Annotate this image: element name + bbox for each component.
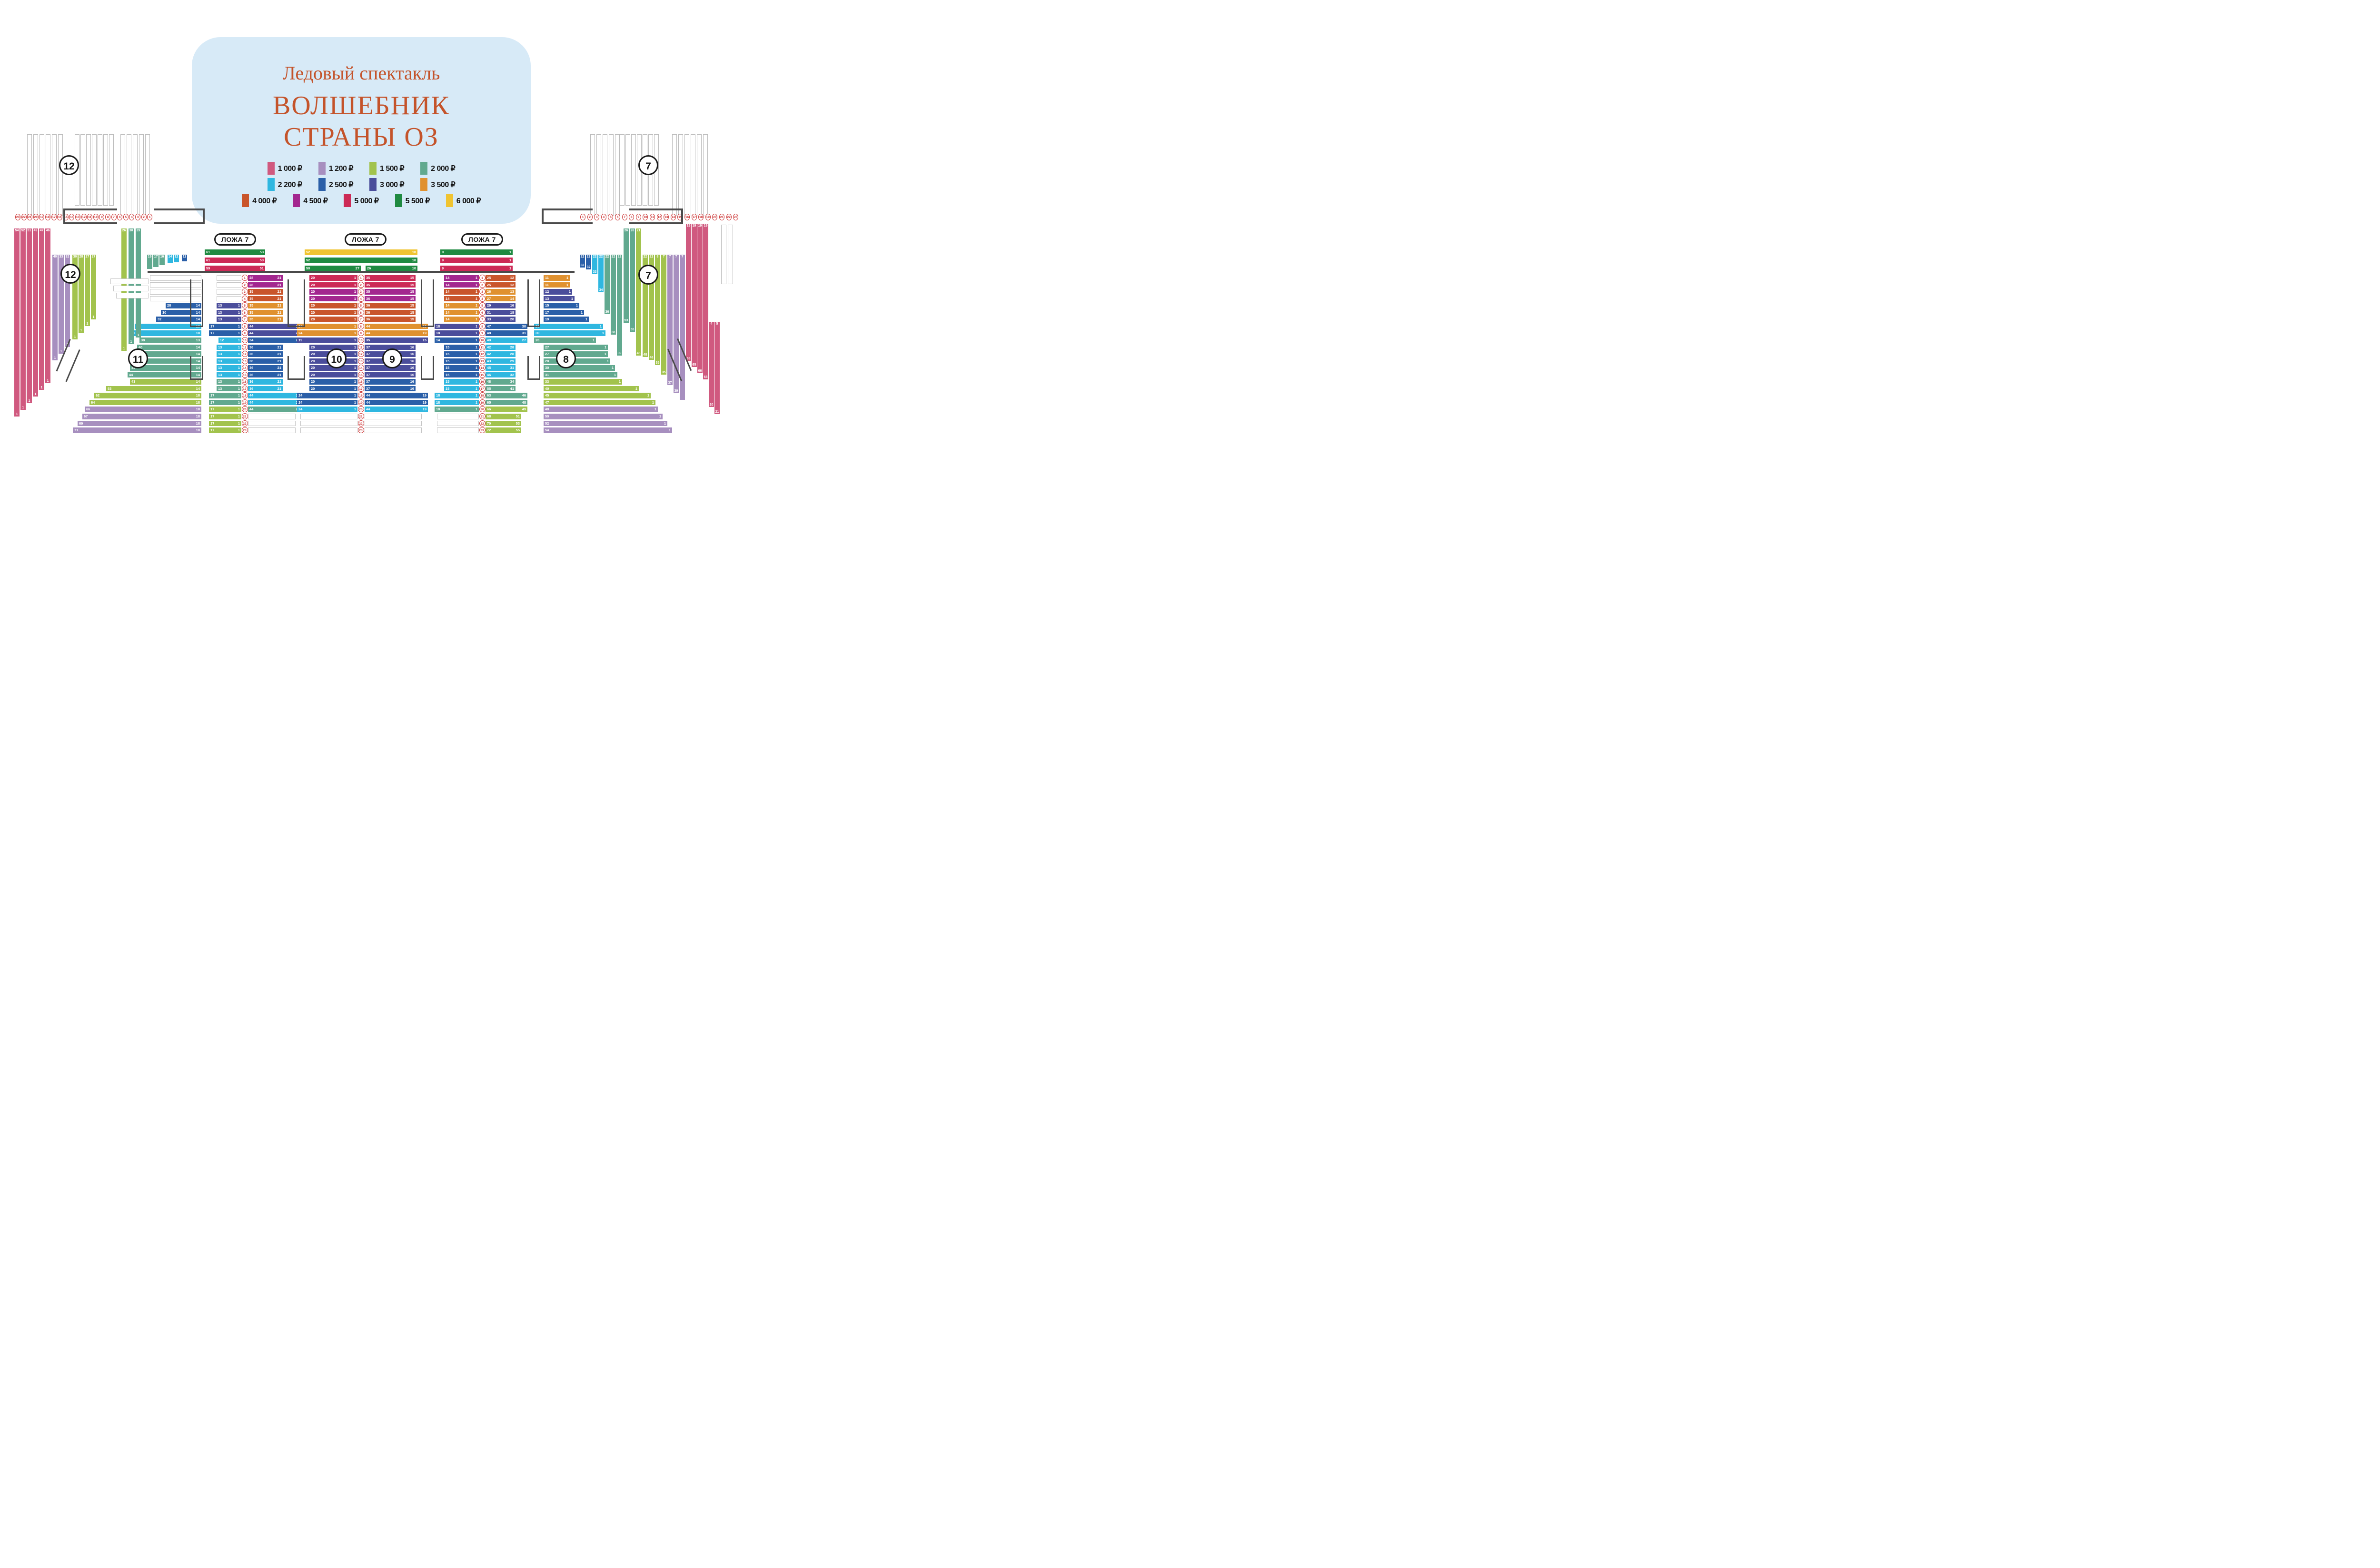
center-left-row-bar[interactable]: 3521: [248, 310, 283, 316]
row-number-circle: 17: [242, 386, 248, 392]
section-circle[interactable]: 12: [59, 155, 79, 175]
central-right-row-bar[interactable]: 4419: [365, 400, 428, 406]
center-right-outer-row-bar[interactable]: 6649: [486, 407, 527, 412]
side-seat-column[interactable]: 471: [39, 228, 44, 390]
section-circle[interactable]: 8: [556, 348, 576, 368]
central-right-row-bar[interactable]: 4419: [365, 407, 428, 412]
center-right-inner-row-bar[interactable]: 181: [435, 400, 479, 406]
seat-number-label: 11: [545, 275, 549, 281]
seat-number-label: 14: [446, 317, 449, 322]
side-seat-column[interactable]: 1963: [686, 224, 691, 361]
seat-number-label: 30: [545, 365, 549, 371]
center-right-outer-row-bar[interactable]: 2714: [486, 296, 516, 302]
price-legend: 1 000 ₽1 200 ₽1 500 ₽2 000 ₽2 200 ₽2 500…: [192, 162, 531, 210]
wing-left-row-bar[interactable]: 6418: [89, 400, 201, 406]
central-right-row-bar[interactable]: 3615: [365, 296, 416, 302]
loge-row-bar[interactable]: 91: [440, 266, 513, 271]
seat-number-label: 40: [545, 386, 549, 392]
side-seat-column[interactable]: 511: [27, 228, 32, 403]
center-right-inner-row-bar[interactable]: 141: [444, 282, 479, 288]
center-right-outer-row-bar[interactable]: 4228: [486, 351, 516, 357]
seat-number-label: 16: [410, 372, 414, 378]
wing-right-row-bar[interactable]: 121: [544, 289, 572, 295]
seat-number-label: 1: [476, 379, 477, 385]
center-left-row-bar[interactable]: 3621: [248, 345, 283, 350]
side-seat-column[interactable]: 735: [661, 255, 666, 375]
central-right-row-bar[interactable]: 3615: [365, 317, 416, 322]
center-right-outer-row-bar[interactable]: 2512: [486, 282, 516, 288]
central-left-row-bar[interactable]: 201: [309, 282, 357, 288]
seat-number-label: 14: [168, 255, 173, 258]
central-left-row-bar[interactable]: 201: [309, 386, 357, 392]
seat-number-label: 1: [238, 386, 240, 392]
side-seat-column[interactable]: 2236: [605, 255, 610, 314]
loge-row-bar[interactable]: 5951: [205, 266, 265, 271]
wing-right-row-bar[interactable]: 331: [544, 379, 622, 385]
row-number-circle: 2: [358, 282, 364, 288]
loge-row-bar[interactable]: 91: [440, 258, 513, 263]
seat-number-label: 54: [14, 229, 20, 232]
center-right-outer-row-bar[interactable]: 2512: [486, 275, 516, 281]
wing-right-row-bar[interactable]: 191: [544, 317, 589, 322]
seat-number-label: 13: [218, 365, 222, 371]
side-seat-column[interactable]: 2232: [586, 255, 591, 269]
seat-number-label: 39: [617, 352, 622, 355]
row-number-circle: 1: [479, 275, 486, 281]
wing-left-row-bar[interactable]: 4014: [137, 345, 201, 350]
side-seat-column[interactable]: 2146: [636, 228, 641, 356]
aisle-left-row-bar[interactable]: 171: [209, 407, 241, 412]
center-right-outer-row-bar[interactable]: 3118: [486, 310, 516, 316]
legend-item: 2 000 ₽: [420, 162, 455, 175]
aisle-left-row-bar[interactable]: 131: [217, 303, 241, 308]
wing-right-row-bar[interactable]: 261: [534, 337, 596, 343]
side-seat-column[interactable]: 16: [159, 255, 165, 265]
center-right-inner-row-bar[interactable]: 141: [435, 337, 479, 343]
central-left-row-bar[interactable]: 201: [309, 379, 357, 385]
seat-number-label: 20: [311, 282, 315, 288]
center-right-outer-row-bar[interactable]: 7053: [486, 421, 521, 427]
seat-number-label: 1: [354, 386, 356, 392]
seat-number-label: 44: [366, 324, 370, 329]
aisle-left-row-bar[interactable]: 171: [209, 400, 241, 406]
center-right-inner-row-bar[interactable]: 181: [435, 324, 479, 329]
center-left-row-bar[interactable]: 2821: [248, 282, 283, 288]
seat-number-label: 36: [249, 365, 253, 371]
section-circle[interactable]: 9: [382, 348, 402, 368]
center-right-outer-row-bar[interactable]: 6548: [486, 400, 527, 406]
seat-number-label: 53: [260, 258, 264, 263]
center-left-row-bar[interactable]: 3420: [248, 337, 301, 343]
wing-right-row-bar[interactable]: 311: [544, 372, 617, 378]
wing-left-row-bar[interactable]: 6718: [82, 414, 201, 419]
loge-row-bar[interactable]: 91: [440, 249, 513, 255]
center-left-row-bar[interactable]: 3521: [248, 296, 283, 302]
center-right-outer-row-bar[interactable]: 2916: [486, 303, 516, 308]
aisle-left-row-bar[interactable]: 131: [217, 372, 241, 378]
corridor-entry: [421, 356, 434, 380]
empty-seat-column: [672, 134, 677, 216]
wing-right-row-bar[interactable]: 521: [544, 421, 667, 427]
aisle-left-row-bar[interactable]: 131: [217, 351, 241, 357]
side-seat-column[interactable]: 1968: [703, 224, 708, 379]
wing-right-row-bar[interactable]: 111: [544, 275, 570, 281]
legend-item: 1 500 ₽: [369, 162, 404, 175]
side-seat-column[interactable]: 281: [79, 255, 84, 333]
row-number-circle: 10: [242, 337, 248, 343]
center-right-inner-row-bar[interactable]: 151: [444, 358, 479, 364]
center-left-row-bar[interactable]: 3621: [248, 372, 283, 378]
central-right-row-bar[interactable]: 3615: [365, 310, 416, 316]
central-left-row-bar[interactable]: 201: [309, 310, 357, 316]
wing-left-row-bar[interactable]: 6618: [85, 407, 201, 412]
seat-number-label: 17: [210, 324, 214, 329]
seat-number-label: 1: [354, 400, 356, 406]
side-seat-column[interactable]: 420: [709, 322, 714, 407]
central-left-row-bar[interactable]: 201: [309, 372, 357, 378]
side-seat-column[interactable]: 2653: [624, 228, 629, 323]
side-seat-column[interactable]: 1965: [692, 224, 697, 367]
wing-right-row-bar[interactable]: 481: [544, 407, 658, 412]
wing-left-row-bar[interactable]: 6918: [78, 421, 201, 427]
seat-number-label: 48: [545, 407, 549, 412]
seat-number-label: 22: [605, 255, 610, 258]
central-right-row-bar[interactable]: 3615: [365, 303, 416, 308]
wing-right-row-bar[interactable]: 171: [544, 310, 584, 316]
wing-right-row-bar[interactable]: 471: [544, 400, 655, 406]
center-left-row-bar[interactable]: 4425: [248, 407, 301, 412]
seat-number-label: 13: [218, 379, 222, 385]
seat-number-label: 19: [703, 224, 708, 228]
side-seat-column[interactable]: 271: [85, 255, 90, 326]
seat-number-label: 14: [436, 337, 440, 343]
seat-number-label: 20: [311, 310, 315, 316]
price-label: 5 000 ₽: [354, 196, 378, 206]
center-left-row-bar[interactable]: 4425: [248, 330, 301, 336]
center-left-row-bar[interactable]: 4425: [248, 400, 301, 406]
wing-left-row-bar[interactable]: 3813: [139, 337, 201, 343]
seat-number-label: 44: [366, 393, 370, 398]
seat-number-label: 1: [238, 365, 240, 371]
loge-row-bar[interactable]: 5210: [305, 249, 417, 255]
side-seat-column[interactable]: 401: [52, 255, 58, 360]
aisle-left-row-bar[interactable]: 171: [209, 421, 241, 427]
center-right-outer-row-bar[interactable]: 4027: [486, 337, 527, 343]
wing-right-row-bar[interactable]: 271: [544, 345, 608, 350]
section-circle[interactable]: 7: [638, 265, 658, 285]
row-number-circle: 16: [479, 378, 486, 385]
center-right-outer-row-bar[interactable]: 4329: [486, 358, 516, 364]
section-circle[interactable]: 12: [60, 264, 80, 284]
seat-number-label: 27: [91, 255, 96, 258]
row-number-circle: 7: [479, 316, 486, 322]
section-circle[interactable]: 10: [327, 348, 347, 368]
center-right-inner-row-bar[interactable]: 151: [444, 379, 479, 385]
seat-number-label: 50: [306, 266, 310, 271]
aisle-left-row-bar[interactable]: 171: [209, 414, 241, 419]
wing-right-row-bar[interactable]: 451: [544, 393, 651, 398]
center-left-row-bar: [248, 414, 296, 419]
loge-row-bar[interactable]: 5027: [305, 266, 361, 271]
seat-number-label: 42: [487, 351, 491, 357]
side-seat-column[interactable]: 11: [182, 255, 187, 261]
seat-number-label: 37: [366, 358, 370, 364]
central-right-row-bar[interactable]: 3515: [365, 337, 428, 343]
seat-number-label: 27: [522, 337, 526, 343]
seat-number-label: 22: [586, 255, 591, 258]
seat-number-label: 17: [153, 255, 159, 258]
aisle-left-row-bar[interactable]: 121: [218, 337, 241, 343]
center-left-row-bar[interactable]: 3521: [248, 317, 283, 322]
center-right-outer-row-bar[interactable]: 4831: [486, 330, 527, 336]
seat-number-label: 37: [366, 379, 370, 385]
side-seat-column[interactable]: 2234: [598, 255, 604, 292]
central-right-row-bar[interactable]: 3716: [365, 372, 416, 378]
center-right-outer-row-bar[interactable]: 4730: [486, 324, 527, 329]
row-number-circle: 21: [358, 413, 364, 419]
center-left-row-bar[interactable]: 4425: [248, 393, 301, 398]
center-right-inner-row-bar[interactable]: 151: [444, 372, 479, 378]
center-right-inner-row-bar[interactable]: 151: [444, 365, 479, 371]
seat-number-label: 33: [487, 317, 491, 322]
seat-number-label: 20: [311, 365, 315, 371]
aisle-left-row-bar: [217, 275, 241, 281]
seat-number-label: 1: [354, 324, 356, 329]
center-right-inner-row-bar[interactable]: 181: [435, 393, 479, 398]
seat-number-label: 1: [354, 358, 356, 364]
side-seat-column: [728, 225, 733, 284]
seat-number-label: 36: [249, 345, 253, 350]
aisle-left-row-bar[interactable]: 131: [217, 379, 241, 385]
row-number-circle: 18: [242, 392, 248, 398]
seat-number-label: 34: [510, 379, 514, 385]
side-seat-column[interactable]: 2238: [611, 255, 616, 335]
row-number-circle: 9: [358, 330, 364, 336]
central-right-row-bar[interactable]: 3515: [365, 275, 416, 281]
aisle-left-row-bar[interactable]: 131: [217, 317, 241, 322]
row-number-circle: 7: [242, 316, 248, 322]
center-left-row-bar[interactable]: 3621: [248, 379, 283, 385]
wing-right-row-bar[interactable]: 301: [544, 365, 615, 371]
seat-number-label: 10: [412, 249, 416, 255]
section-circle[interactable]: 7: [638, 155, 658, 175]
center-right-inner-row-bar[interactable]: 141: [444, 275, 479, 281]
side-seat-column[interactable]: 2233: [592, 255, 597, 274]
center-right-outer-row-bar[interactable]: 6346: [486, 393, 527, 398]
center-right-outer-row-bar[interactable]: 6851: [486, 414, 521, 419]
side-seat-column[interactable]: 461: [45, 228, 50, 383]
central-left-row-bar[interactable]: 201: [309, 289, 357, 295]
seat-number-label: 19: [423, 393, 426, 398]
side-seat-column[interactable]: 2232: [580, 255, 585, 268]
center-right-outer-row-bar[interactable]: 5541: [486, 386, 516, 392]
loge-row-bar[interactable]: 2610: [366, 266, 417, 271]
center-right-outer-row-bar[interactable]: 3320: [486, 317, 516, 322]
seat-number-label: 1: [509, 258, 511, 263]
center-right-outer-row-bar[interactable]: 4531: [486, 365, 516, 371]
central-left-row-bar[interactable]: 241: [297, 330, 357, 336]
seat-number-label: 1: [354, 330, 356, 336]
central-left-row-bar[interactable]: 241: [297, 407, 357, 412]
side-seat-column[interactable]: 12: [174, 255, 179, 262]
wing-right-row-bar[interactable]: 501: [544, 414, 663, 419]
wing-right-row-bar[interactable]: 291: [534, 324, 603, 329]
central-right-row-bar[interactable]: 4419: [365, 393, 428, 398]
seat-number-label: 21: [278, 296, 281, 302]
aisle-left-row-bar[interactable]: 171: [209, 324, 241, 329]
aisle-left-row-bar[interactable]: 171: [209, 427, 241, 433]
aisle-left-row-bar[interactable]: 171: [209, 393, 241, 398]
center-right-inner-row-bar[interactable]: 141: [444, 289, 479, 295]
seat-number-label: 20: [311, 303, 315, 308]
event-title-line2: СТРАНЫ ОЗ: [192, 122, 531, 152]
wing-right-row-bar[interactable]: 151: [544, 303, 579, 308]
section-circle[interactable]: 11: [128, 348, 148, 368]
wing-right-row-bar[interactable]: 281: [544, 358, 610, 364]
price-swatch: [242, 194, 249, 207]
center-right-inner-row-bar[interactable]: 151: [444, 345, 479, 350]
central-right-row-bar[interactable]: 4419: [365, 330, 428, 336]
center-left-row-bar[interactable]: 3621: [248, 358, 283, 364]
central-left-row-bar[interactable]: 201: [309, 317, 357, 322]
side-seat-column[interactable]: 1966: [697, 224, 703, 373]
seat-number-label: 1: [354, 345, 356, 350]
seat-number-label: 15: [410, 289, 414, 295]
aisle-left-row-bar[interactable]: 131: [217, 358, 241, 364]
central-right-row-bar[interactable]: 3515: [365, 282, 416, 288]
center-left-row-bar[interactable]: 3621: [248, 386, 283, 392]
central-right-row-bar[interactable]: 3716: [365, 386, 416, 392]
seat-number-label: 20: [311, 386, 315, 392]
seat-number-label: 51: [260, 266, 264, 271]
seat-number-label: 21: [278, 282, 281, 288]
side-seat-column[interactable]: 541: [14, 228, 20, 417]
seat-number-label: 15: [423, 337, 426, 343]
center-right-inner-row-bar[interactable]: 141: [444, 296, 479, 302]
central-left-row-bar[interactable]: 241: [297, 324, 357, 329]
aisle-left-row-bar[interactable]: 131: [217, 365, 241, 371]
center-right-outer-row-bar[interactable]: 4632: [486, 372, 516, 378]
seat-number-label: 46: [487, 372, 491, 378]
center-right-inner-row-bar[interactable]: 181: [435, 407, 479, 412]
seat-number-label: 1: [647, 393, 649, 398]
row-number-circle: 15: [479, 372, 486, 378]
seat-number-label: 1: [238, 324, 240, 329]
aisle-left-row-bar[interactable]: 131: [217, 310, 241, 316]
wing-right-row-bar[interactable]: 301: [534, 330, 605, 336]
aisle-left-row-bar[interactable]: 131: [217, 386, 241, 392]
center-left-row-bar[interactable]: 3621: [248, 365, 283, 371]
side-seat-column[interactable]: 521: [714, 322, 720, 414]
center-right-outer-row-bar[interactable]: 7255: [486, 427, 521, 433]
central-right-row-bar[interactable]: 4419: [365, 324, 428, 329]
side-seat-column[interactable]: 2239: [617, 255, 622, 356]
seat-number-label: 55: [516, 427, 520, 433]
seat-number-label: 4: [709, 322, 714, 326]
legend-row: 4 000 ₽4 500 ₽5 000 ₽5 500 ₽6 000 ₽: [192, 194, 531, 207]
seat-number-label: 15: [446, 351, 449, 357]
seat-number-label: 14: [446, 310, 449, 316]
wing-right-row-bar[interactable]: 111: [544, 282, 570, 288]
seat-number-label: 1: [354, 372, 356, 378]
center-right-inner-row-bar[interactable]: 181: [435, 330, 479, 336]
seat-number-label: 46: [45, 229, 50, 232]
aisle-left-row-bar[interactable]: 171: [209, 330, 241, 336]
loge-row-bar[interactable]: 6153: [205, 258, 265, 263]
seat-number-label: 28: [167, 303, 171, 308]
loge-row-bar[interactable]: 5210: [305, 258, 417, 263]
central-left-row-bar[interactable]: 191: [297, 337, 357, 343]
center-left-row-bar[interactable]: 3521: [248, 289, 283, 295]
central-left-row-bar[interactable]: 201: [309, 275, 357, 281]
row-number-circle: 12: [242, 351, 248, 357]
central-left-row-bar[interactable]: 241: [297, 400, 357, 406]
center-right-outer-row-bar[interactable]: 2613: [486, 289, 516, 295]
center-right-inner-row-bar[interactable]: 141: [444, 317, 479, 322]
central-left-row-bar[interactable]: 241: [297, 393, 357, 398]
seat-number-label: 1: [238, 330, 240, 336]
central-right-row-bar[interactable]: 3716: [365, 379, 416, 385]
seat-number-label: 15: [410, 275, 414, 281]
side-seat-column[interactable]: 2655: [630, 228, 635, 332]
center-left-row-bar[interactable]: 2821: [248, 275, 283, 281]
aisle-left-row-bar: [217, 282, 241, 288]
center-left-row-bar[interactable]: 3621: [248, 351, 283, 357]
central-left-row-bar[interactable]: 201: [309, 296, 357, 302]
side-seat-column[interactable]: 491: [33, 228, 38, 397]
side-seat-column[interactable]: 737: [667, 255, 673, 385]
row-number-circle: 3: [479, 288, 486, 295]
side-seat-column[interactable]: 521: [20, 228, 26, 410]
seating-chart: Ледовый спектакль ВОЛШЕБНИК СТРАНЫ ОЗ 1 …: [0, 0, 746, 462]
center-right-inner-row-bar[interactable]: 151: [444, 351, 479, 357]
central-left-row-bar[interactable]: 201: [309, 303, 357, 308]
event-subtitle: Ледовый спектакль: [192, 62, 531, 84]
side-seat-column[interactable]: 17: [153, 255, 159, 267]
center-right-outer-row-bar[interactable]: 4228: [486, 345, 516, 350]
aisle-left-row-bar[interactable]: 131: [217, 345, 241, 350]
side-seat-column[interactable]: 14: [168, 255, 173, 263]
center-left-row-bar: [248, 427, 296, 433]
seat-number-label: 10: [412, 258, 416, 263]
center-left-row-bar[interactable]: 3521: [248, 303, 283, 308]
center-right-inner-row-bar[interactable]: 141: [444, 303, 479, 308]
center-right-inner-row-bar[interactable]: 151: [444, 386, 479, 392]
wing-left-row-bar[interactable]: 6218: [94, 393, 201, 398]
wing-left-row-bar[interactable]: 5314: [106, 386, 201, 392]
side-seat-column[interactable]: 19: [147, 255, 152, 269]
wing-right-row-bar[interactable]: 541: [544, 427, 672, 433]
aisle-left-row-bar: [217, 289, 241, 295]
center-right-outer-row-bar[interactable]: 4834: [486, 379, 516, 385]
seat-number-label: 14: [510, 296, 514, 302]
row-number-circle: 5: [358, 302, 364, 308]
loge-label: ЛОЖА 7: [214, 233, 256, 246]
empty-seat-column: [40, 134, 44, 216]
price-label: 2 500 ₽: [329, 180, 353, 189]
wing-right-row-bar[interactable]: 131: [544, 296, 575, 302]
wing-left-row-bar[interactable]: 7118: [73, 427, 201, 433]
loge-label: ЛОЖА 7: [345, 233, 387, 246]
side-seat-column[interactable]: 271: [91, 255, 96, 319]
seat-number-label: 48: [649, 356, 654, 359]
central-right-row-bar[interactable]: 3515: [365, 289, 416, 295]
seat-number-label: 52: [20, 229, 26, 232]
loge-row-bar[interactable]: 6153: [205, 249, 265, 255]
seat-number-label: 61: [206, 258, 210, 263]
wing-right-row-bar[interactable]: 401: [544, 386, 639, 392]
center-right-inner-row-bar[interactable]: 141: [444, 310, 479, 316]
